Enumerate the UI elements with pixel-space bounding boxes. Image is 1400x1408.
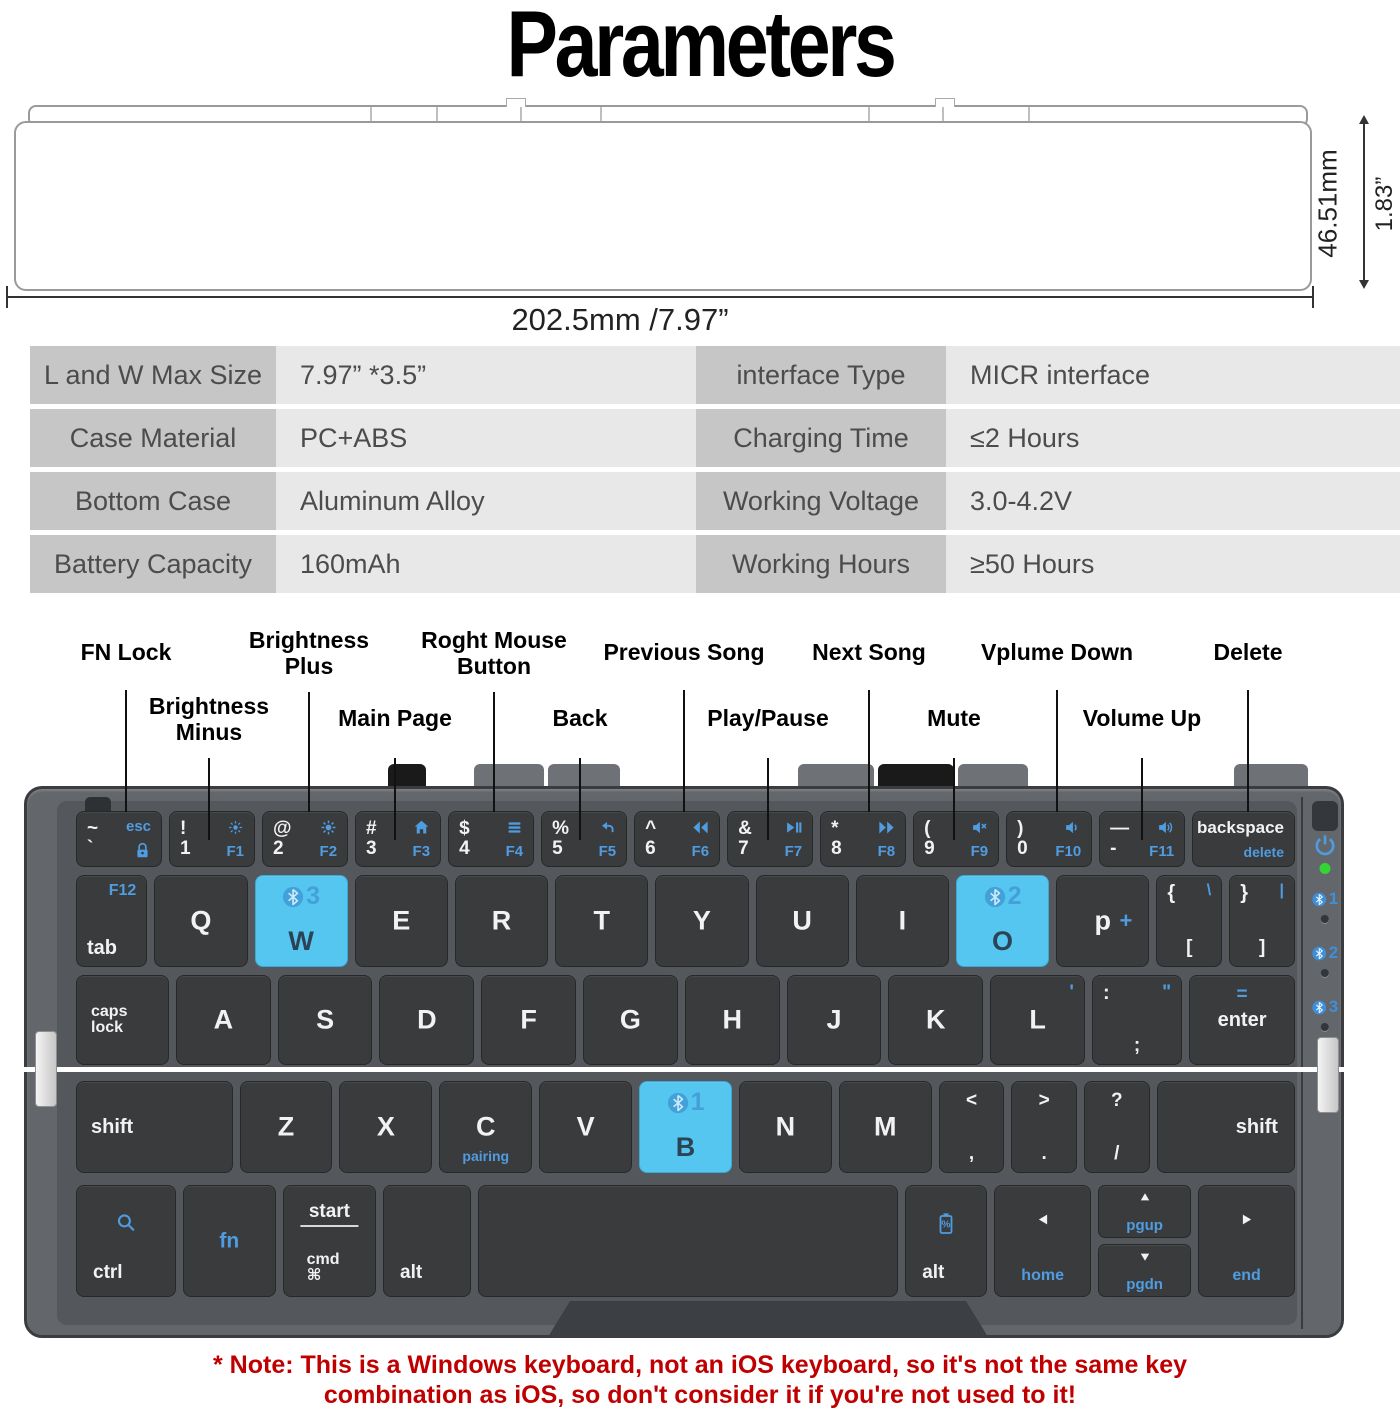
key-4-f4[interactable]: $4F4 (448, 811, 534, 867)
key-home[interactable]: home (994, 1185, 1091, 1297)
key-legend: ) (1017, 819, 1023, 838)
key-a[interactable]: A (176, 975, 271, 1065)
hinge-bump (506, 98, 526, 107)
key-e[interactable]: E (355, 875, 448, 967)
leader-line (767, 758, 769, 840)
key-legend: V (577, 1114, 595, 1141)
key-legend: backspace (1197, 819, 1284, 836)
key-legend: K (926, 1007, 946, 1034)
callout-volume-down: Vplume Down (967, 640, 1147, 666)
leader-line (208, 758, 210, 840)
key-legend: tab (87, 938, 117, 958)
key-legend: ctrl (93, 1263, 123, 1282)
key-alt-right[interactable]: %alt (905, 1185, 987, 1297)
key-o[interactable]: 2O (956, 875, 1049, 967)
volume-up-icon (1157, 819, 1174, 836)
key-legend: " (1162, 983, 1171, 1002)
key-z[interactable]: Z (240, 1081, 333, 1173)
key-legend: alt (400, 1263, 422, 1282)
key-legend: \ (1207, 883, 1211, 899)
key-legend: esc (126, 819, 151, 834)
key-v[interactable]: V (539, 1081, 632, 1173)
key-legend: T (593, 908, 610, 935)
key-legend: I (899, 908, 907, 935)
key-legend: 6 (645, 839, 656, 858)
bluetooth-icon: 3 (1312, 997, 1338, 1017)
leader-line (1247, 690, 1249, 812)
page: Parameters 46.51mm 1.83” 202.5mm /7.97” … (0, 0, 1400, 1408)
key-y[interactable]: Y (655, 875, 748, 967)
key-legend: M (874, 1114, 897, 1141)
key-backspace[interactable]: backspacedelete (1192, 811, 1295, 867)
key-legend: F9 (971, 844, 989, 859)
note-line-1: * Note: This is a Windows keyboard, not … (0, 1350, 1400, 1380)
spec-value: PC+ABS (276, 409, 714, 467)
key-legend: delete (1244, 845, 1284, 859)
key-w[interactable]: 3W (255, 875, 348, 967)
key-legend: 7 (738, 839, 749, 858)
key-legend: F1 (227, 844, 245, 859)
brightness-plus-icon (320, 819, 337, 836)
key-legend: . (1042, 1144, 1047, 1163)
key-space[interactable] (478, 1185, 899, 1297)
key-legend: = (1236, 985, 1247, 1004)
brightness-minus-icon (227, 819, 244, 836)
key-legend: F12 (109, 883, 137, 899)
key-legend: F11 (1149, 844, 1174, 859)
next-song-icon (878, 819, 895, 836)
play-pause-icon (785, 819, 802, 836)
key-legend: F7 (785, 844, 803, 859)
key-legend: [ (1186, 938, 1192, 957)
leader-line (125, 690, 127, 812)
key-legend: pairing (462, 1149, 509, 1163)
key-2-f2[interactable]: @2F2 (262, 811, 348, 867)
back-icon (599, 819, 616, 836)
key-legend: & (738, 819, 752, 838)
spec-value: ≥50 Hours (946, 535, 1400, 593)
key-legend: @ (273, 819, 292, 838)
key-period[interactable]: >. (1011, 1081, 1077, 1173)
spec-label: Working Voltage (696, 472, 946, 530)
key-m[interactable]: M (839, 1081, 932, 1173)
main-page-icon (413, 819, 430, 836)
spec-value: 160mAh (276, 535, 714, 593)
width-dimension-line (6, 296, 1314, 298)
diagram-body (14, 121, 1312, 291)
spec-label: Battery Capacity (30, 535, 276, 593)
key-p[interactable]: p+ (1056, 875, 1149, 967)
key-legend: ] (1259, 938, 1265, 957)
key-c[interactable]: Cpairing (439, 1081, 532, 1173)
height-mm-label: 46.51mm (1313, 144, 1344, 264)
key-legend: F6 (692, 844, 710, 859)
key-pgup[interactable]: pgup (1098, 1185, 1191, 1238)
key-h[interactable]: H (685, 975, 780, 1065)
key-legend: caps lock (91, 1004, 127, 1036)
key-legend: S (316, 1007, 334, 1034)
spec-label: Charging Time (696, 409, 946, 467)
key-shift-left[interactable]: shift (76, 1081, 233, 1173)
key-legend: enter (1218, 1010, 1267, 1030)
key-i[interactable]: I (856, 875, 949, 967)
note: * Note: This is a Windows keyboard, not … (0, 1350, 1400, 1408)
callout-play-pause: Play/Pause (698, 706, 838, 732)
height-dimension-line (1363, 118, 1365, 286)
key-legend: start (301, 1202, 358, 1227)
key-legend: 0 (1017, 839, 1028, 858)
key-legend: 5 (552, 839, 563, 858)
callout-delete: Delete (1198, 640, 1298, 666)
key-bracket-right[interactable]: }|] (1229, 875, 1295, 967)
search-icon (115, 1212, 136, 1233)
leader-line (1141, 758, 1143, 840)
key-legend: N (776, 1114, 796, 1141)
key-legend: ! (180, 819, 186, 838)
key-n[interactable]: N (739, 1081, 832, 1173)
key-fn[interactable]: fn (183, 1185, 276, 1297)
callout-volume-up: Volume Up (1072, 706, 1212, 732)
keyboard: ~esc`!1F1@2F2#3F3$4F4%5F5^6F6&7F7*8F8(9F… (24, 786, 1344, 1338)
key-legend: F5 (599, 844, 617, 859)
page-title: Parameters (0, 0, 1400, 98)
key-q[interactable]: Q (154, 875, 247, 967)
hinge-bump (935, 98, 955, 107)
key-legend: Q (190, 908, 211, 935)
right-mouse-menu-icon (506, 819, 523, 836)
key-legend: F (520, 1007, 537, 1034)
key-alt-left[interactable]: alt (383, 1185, 471, 1297)
leader-line (953, 758, 955, 840)
key-x[interactable]: X (339, 1081, 432, 1173)
leader-line (683, 690, 685, 812)
key-legend: W (288, 926, 313, 957)
mute-icon (971, 819, 988, 836)
key-legend: R (492, 908, 512, 935)
key-legend: pgdn (1126, 1277, 1163, 1292)
key-legend: F8 (878, 844, 896, 859)
key-9-f9[interactable]: (9F9 (913, 811, 999, 867)
keyboard-row-zxcv: shiftZXCpairingV1BNM<,>.?/shift (76, 1081, 1295, 1173)
key-legend: ? (1111, 1091, 1123, 1110)
key-bracket-left[interactable]: {\[ (1156, 875, 1222, 967)
key-legend: % (552, 819, 569, 838)
key-page-keys[interactable]: pguppgdn (1098, 1185, 1191, 1297)
bluetooth-icon: 2 (984, 882, 1022, 911)
power-icon[interactable] (1313, 833, 1337, 857)
key-end[interactable]: end (1198, 1185, 1295, 1297)
bluetooth-channel-3: 3 (1312, 997, 1338, 1031)
key-s[interactable]: S (278, 975, 373, 1065)
key-legend: B (676, 1132, 696, 1163)
key-legend: fn (219, 1231, 239, 1252)
callout-previous-song: Previous Song (584, 640, 784, 666)
key-legend: alt (922, 1263, 944, 1282)
spec-value: 7.97” *3.5” (276, 346, 714, 404)
key-legend: $ (459, 819, 470, 838)
key-slash[interactable]: ?/ (1084, 1081, 1150, 1173)
key-legend: p (1094, 908, 1111, 935)
key-legend: F3 (413, 844, 431, 859)
battery-icon: % (936, 1212, 956, 1236)
key-legend: ; (1134, 1036, 1140, 1055)
key-comma[interactable]: <, (939, 1081, 1005, 1173)
spec-value: MICR interface (946, 346, 1400, 404)
key-d[interactable]: D (379, 975, 474, 1065)
bottom-recess (548, 1301, 988, 1337)
keyboard-row-bottom: ctrlfnstartcmd ⌘alt%althomepguppgdnend (76, 1185, 1295, 1297)
callout-main-page: Main Page (315, 706, 475, 732)
key-legend: end (1232, 1268, 1260, 1284)
key-r[interactable]: R (455, 875, 548, 967)
key-legend: C (476, 1114, 496, 1141)
key-legend: ^ (645, 819, 656, 838)
key-legend: U (792, 908, 812, 935)
key-3-f3[interactable]: #3F3 (355, 811, 441, 867)
bluetooth-icon: 1 (1312, 889, 1338, 909)
leader-line (868, 690, 870, 812)
previous-song-icon (692, 819, 709, 836)
key-legend: O (992, 926, 1013, 957)
callout-right-mouse: Roght Mouse Button (419, 628, 569, 680)
key-legend: D (417, 1007, 437, 1034)
spec-label: Working Hours (696, 535, 946, 593)
key-legend: { (1167, 883, 1175, 903)
key-legend: shift (91, 1117, 133, 1137)
callout-back: Back (540, 706, 620, 732)
callout-brightness-plus: Brightness Plus (239, 628, 379, 680)
key-legend: Y (693, 908, 711, 935)
key-enter[interactable]: =enter (1189, 975, 1295, 1065)
side-button[interactable] (1312, 801, 1338, 831)
key-legend: ` (87, 839, 93, 858)
width-label: 202.5mm /7.97” (370, 302, 870, 338)
key-legend: 9 (924, 839, 935, 858)
key-legend: cmd ⌘ (307, 1252, 353, 1284)
key-t[interactable]: T (555, 875, 648, 967)
key-legend: ( (924, 819, 930, 838)
key-legend: | (1280, 883, 1284, 899)
bluetooth-channel-2: 2 (1312, 943, 1338, 977)
right-hinge-clasp (1317, 1037, 1339, 1113)
leader-line (1056, 690, 1058, 812)
spec-value: 3.0-4.2V (946, 472, 1400, 530)
key-legend: ~ (87, 819, 98, 838)
leader-line (493, 692, 495, 812)
key-1-f1[interactable]: !1F1 (169, 811, 255, 867)
height-inch-label: 1.83” (1371, 144, 1399, 264)
callout-next-song: Next Song (789, 640, 949, 666)
key-legend: 2 (273, 839, 284, 858)
bluetooth-led (1321, 915, 1329, 923)
key-legend: F10 (1055, 844, 1081, 859)
spec-label: interface Type (696, 346, 946, 404)
spec-label: Bottom Case (30, 472, 276, 530)
left-hinge-clasp (35, 1031, 57, 1107)
key-u[interactable]: U (756, 875, 849, 967)
key-legend: pgup (1126, 1218, 1163, 1233)
keyboard-row-qwerty: F12tabQ3WERTYUI2Op+{\[}|] (76, 875, 1295, 967)
key-legend: + (1119, 910, 1132, 932)
key-legend: F2 (320, 844, 338, 859)
key-legend: L (1029, 1007, 1046, 1034)
key-legend: - (1110, 839, 1116, 858)
key-legend: Z (278, 1114, 295, 1141)
key-legend: < (966, 1091, 977, 1110)
key-l[interactable]: L' (990, 975, 1085, 1065)
key-k[interactable]: K (888, 975, 983, 1065)
key-legend: : (1103, 983, 1110, 1003)
callout-brightness-minus: Brightness Minus (144, 694, 274, 746)
key-legend: H (722, 1007, 742, 1034)
key-g[interactable]: G (583, 975, 678, 1065)
key-f[interactable]: F (481, 975, 576, 1065)
key-legend: 3 (366, 839, 377, 858)
key-legend: / (1114, 1144, 1119, 1163)
bluetooth-icon: 2 (1312, 943, 1338, 963)
key-caps-lock[interactable]: caps lock (76, 975, 169, 1065)
key-j[interactable]: J (787, 975, 882, 1065)
keyboard-row-asdf: caps lockASDFGHJKL':";=enter (76, 975, 1295, 1065)
key-legend: 8 (831, 839, 842, 858)
key-legend: ' (1069, 983, 1074, 1002)
key-legend: 4 (459, 839, 470, 858)
bluetooth-channel-1: 1 (1312, 889, 1338, 923)
key-6-f6[interactable]: ^6F6 (634, 811, 720, 867)
key-pgdn[interactable]: pgdn (1098, 1244, 1191, 1297)
triangle-right-icon (1239, 1212, 1254, 1227)
key-legend: G (620, 1007, 641, 1034)
key-legend: A (214, 1007, 234, 1034)
triangle-left-icon (1035, 1212, 1050, 1227)
fn-lock-icon (134, 842, 151, 859)
svg-text:%: % (942, 1220, 951, 1231)
key-shift-right[interactable]: shift (1157, 1081, 1295, 1173)
keyboard-row-function: ~esc`!1F1@2F2#3F3$4F4%5F5^6F6&7F7*8F8(9F… (76, 811, 1295, 867)
key-legend: # (366, 819, 377, 838)
volume-down-icon (1064, 819, 1081, 836)
key-legend: J (826, 1007, 841, 1034)
triangle-up-icon (1138, 1191, 1151, 1204)
key-legend: 1 (180, 839, 191, 858)
key-legend: shift (1236, 1117, 1278, 1137)
key-tab[interactable]: F12tab (76, 875, 147, 967)
key-7-f7[interactable]: &7F7 (727, 811, 813, 867)
key-b[interactable]: 1B (639, 1081, 732, 1173)
bluetooth-led (1321, 969, 1329, 977)
key-legend: X (377, 1114, 395, 1141)
key-semicolon[interactable]: :"; (1092, 975, 1182, 1065)
key-0-f10[interactable]: )0F10 (1006, 811, 1092, 867)
key-ctrl[interactable]: ctrl (76, 1185, 176, 1297)
power-led (1320, 863, 1331, 874)
key-legend: > (1039, 1091, 1050, 1110)
bluetooth-icon: 1 (667, 1088, 705, 1117)
spec-value: Aluminum Alloy (276, 472, 714, 530)
callout-fn-lock: FN Lock (71, 640, 181, 666)
key-esc[interactable]: ~esc` (76, 811, 162, 867)
bluetooth-led (1321, 1023, 1329, 1031)
key-legend: home (1021, 1268, 1064, 1284)
leader-line (308, 692, 310, 812)
key-legend: * (831, 819, 838, 838)
key-8-f8[interactable]: *8F8 (820, 811, 906, 867)
key-legend: } (1240, 883, 1248, 903)
bluetooth-icon: 3 (282, 882, 320, 911)
fold-seam (24, 1067, 1344, 1072)
note-line-2: combination as iOS, so don't consider it… (0, 1380, 1400, 1408)
spec-value: ≤2 Hours (946, 409, 1400, 467)
triangle-down-icon (1138, 1250, 1151, 1263)
key-legend: , (969, 1144, 974, 1163)
key-legend: F4 (506, 844, 524, 859)
leader-line (394, 758, 396, 840)
spec-label: L and W Max Size (30, 346, 276, 404)
leader-line (579, 758, 581, 840)
spec-label: Case Material (30, 409, 276, 467)
key-5-f5[interactable]: %5F5 (541, 811, 627, 867)
key-start[interactable]: startcmd ⌘ (283, 1185, 376, 1297)
callout-mute: Mute (914, 706, 994, 732)
key-legend: — (1110, 819, 1129, 838)
key-legend: E (392, 908, 410, 935)
